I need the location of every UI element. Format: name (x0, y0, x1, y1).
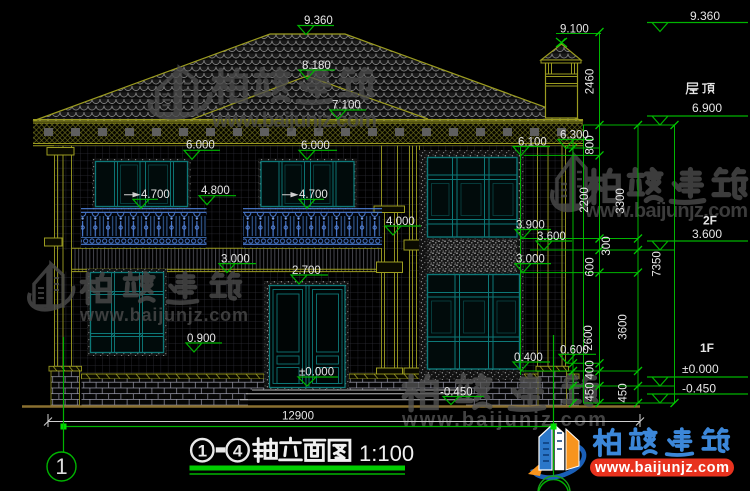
svg-text:600: 600 (585, 257, 597, 276)
svg-text:www.baijunjz.com: www.baijunjz.com (79, 305, 248, 325)
svg-text:2460: 2460 (585, 69, 597, 95)
svg-text:6.100: 6.100 (518, 137, 547, 149)
svg-text:3300: 3300 (615, 188, 627, 214)
svg-text:2200: 2200 (579, 187, 591, 213)
svg-text:6.000: 6.000 (301, 140, 330, 152)
svg-text:www.baijunjz.com: www.baijunjz.com (401, 409, 606, 431)
svg-text:±0.000: ±0.000 (682, 362, 719, 376)
svg-text:3.000: 3.000 (516, 254, 545, 266)
svg-text:6.900: 6.900 (692, 101, 722, 115)
svg-text:-0.450: -0.450 (682, 382, 716, 396)
svg-text:3.000: 3.000 (221, 254, 250, 266)
svg-text:3.600: 3.600 (537, 231, 566, 243)
svg-text:4: 4 (233, 442, 243, 461)
svg-text:www.baijunjz.com: www.baijunjz.com (594, 460, 729, 476)
svg-text:450: 450 (585, 382, 597, 401)
svg-text:4.800: 4.800 (201, 185, 230, 197)
svg-text:0.400: 0.400 (514, 352, 543, 364)
svg-text:1:100: 1:100 (359, 441, 414, 466)
svg-text:0.900: 0.900 (187, 333, 216, 345)
svg-text:1: 1 (198, 442, 207, 461)
svg-text:9.360: 9.360 (304, 15, 333, 27)
svg-text:3600: 3600 (618, 314, 630, 340)
svg-text:400: 400 (585, 360, 597, 379)
svg-text:450: 450 (618, 383, 630, 402)
svg-text:www.baijunjz.com: www.baijunjz.com (211, 109, 377, 132)
svg-text:2600: 2600 (583, 325, 595, 351)
svg-text:9.100: 9.100 (560, 24, 589, 36)
svg-text:7350: 7350 (652, 251, 664, 277)
svg-text:4.000: 4.000 (386, 216, 415, 228)
svg-text:2F: 2F (703, 214, 717, 228)
svg-text:300: 300 (601, 236, 613, 255)
svg-text:3.600: 3.600 (692, 227, 722, 241)
svg-text:-0.450: -0.450 (440, 387, 473, 399)
svg-text:1: 1 (55, 454, 67, 479)
svg-text:2.700: 2.700 (292, 265, 321, 277)
svg-text:4.700: 4.700 (141, 189, 170, 201)
svg-text:www.baijunjz.com: www.baijunjz.com (584, 200, 748, 222)
svg-text:6.000: 6.000 (186, 140, 215, 152)
svg-text:12900: 12900 (282, 411, 314, 423)
svg-text:800: 800 (585, 135, 597, 154)
svg-text:±0.000: ±0.000 (299, 367, 334, 379)
svg-text:8.180: 8.180 (302, 60, 331, 72)
svg-text:1F: 1F (700, 341, 714, 355)
svg-text:3.900: 3.900 (516, 220, 545, 232)
svg-text:4.700: 4.700 (299, 189, 328, 201)
svg-text:9.360: 9.360 (690, 9, 720, 23)
svg-text:7.100: 7.100 (332, 100, 361, 112)
